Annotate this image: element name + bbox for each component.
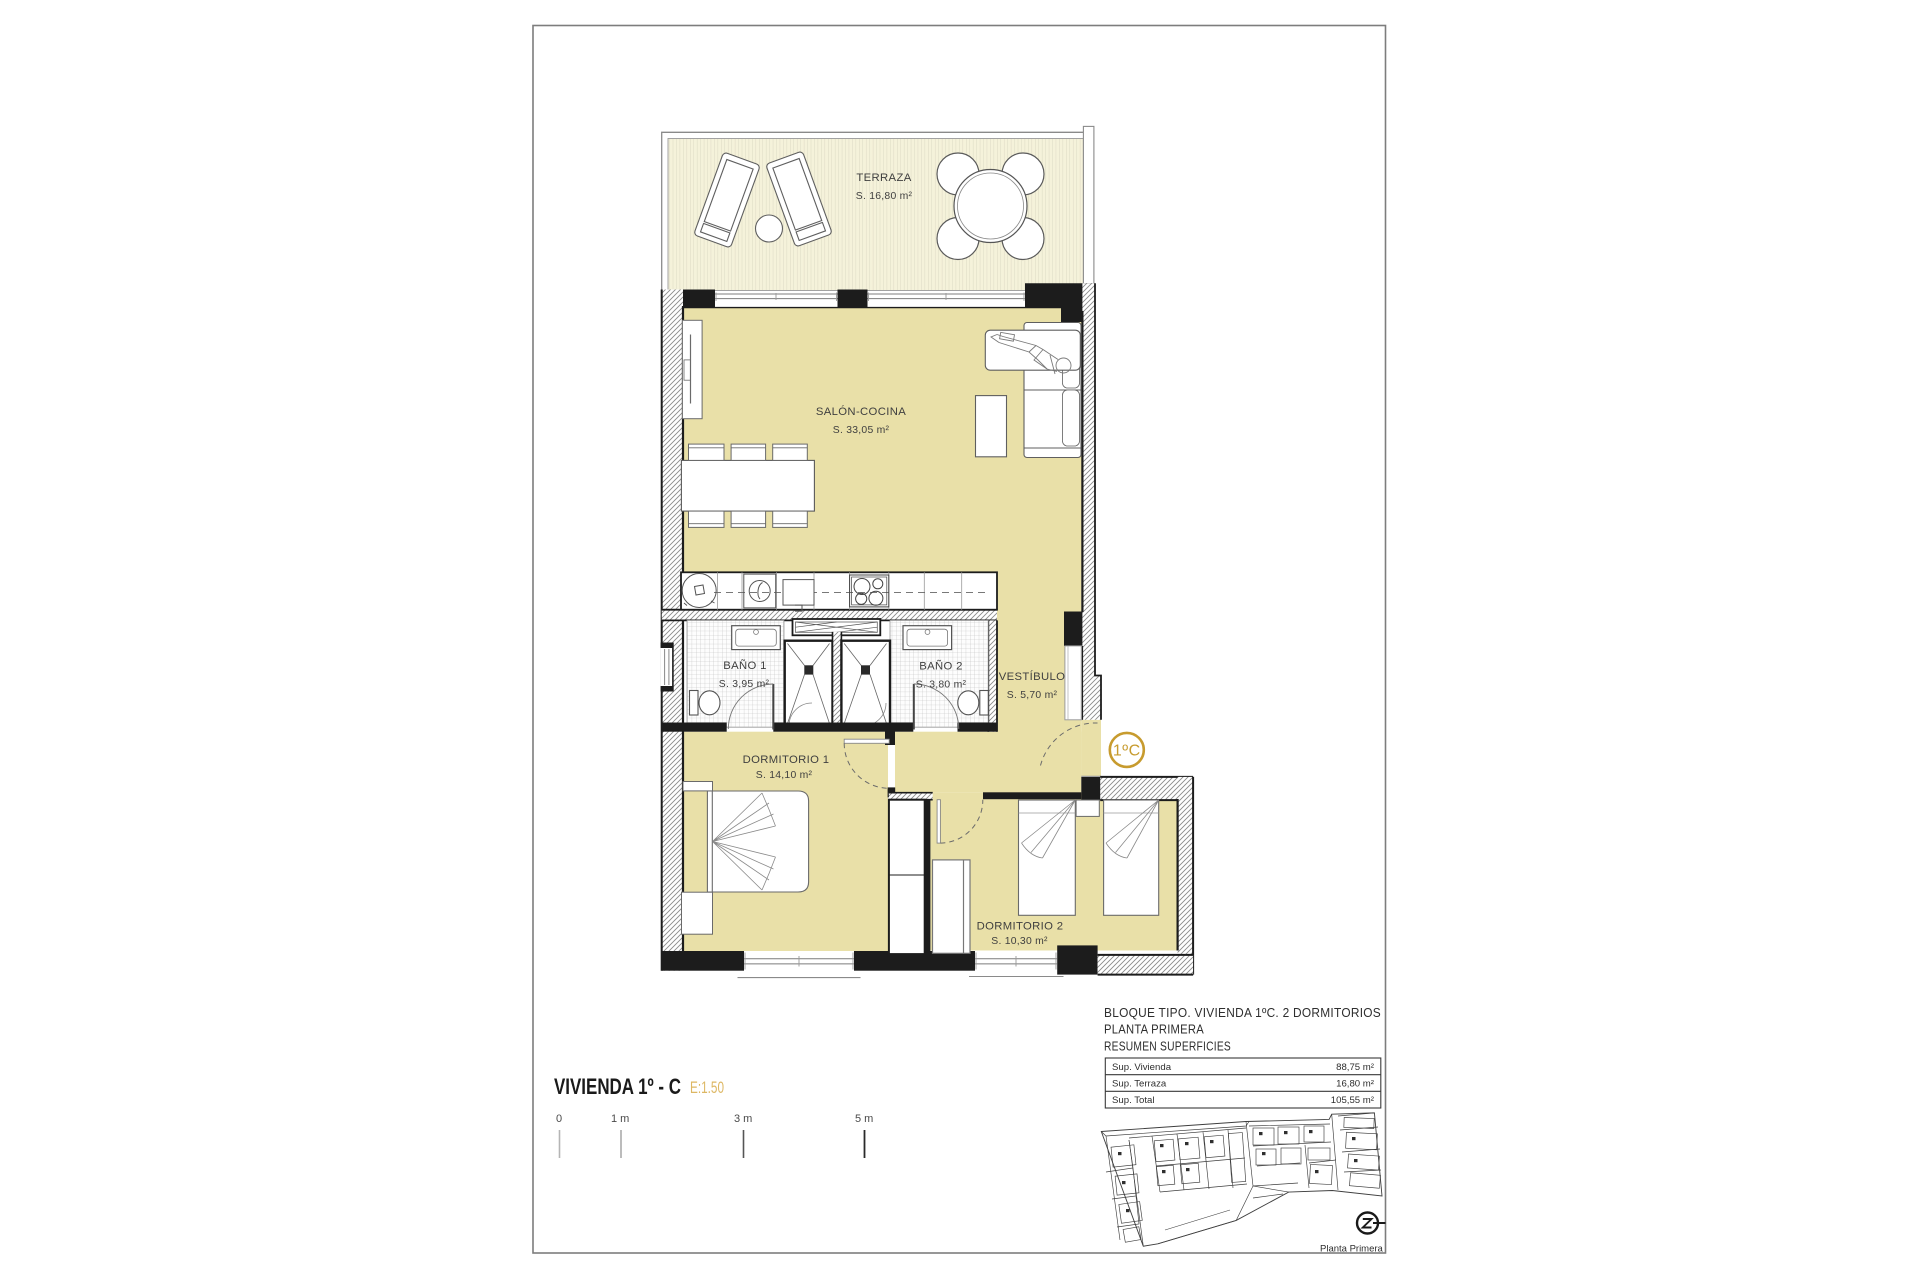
svg-text:BLOQUE TIPO. VIVIENDA 1ºC. 2 D: BLOQUE TIPO. VIVIENDA 1ºC. 2 DORMITORIOS [1104, 1005, 1381, 1020]
svg-text:105,55 m²: 105,55 m² [1331, 1095, 1375, 1106]
svg-text:1ºC: 1ºC [1113, 743, 1141, 760]
svg-text:PLANTA PRIMERA: PLANTA PRIMERA [1104, 1022, 1204, 1037]
svg-text:0: 0 [556, 1113, 562, 1125]
svg-text:Planta Primera: Planta Primera [1320, 1244, 1384, 1255]
svg-text:DORMITORIO 1: DORMITORIO 1 [743, 754, 830, 766]
svg-text:BAÑO 1: BAÑO 1 [723, 659, 767, 672]
svg-text:S. 16,80 m²: S. 16,80 m² [856, 191, 913, 202]
svg-text:E:1.50: E:1.50 [690, 1079, 724, 1097]
svg-text:3 m: 3 m [734, 1113, 752, 1125]
svg-text:5 m: 5 m [855, 1113, 873, 1125]
svg-text:88,75 m²: 88,75 m² [1336, 1062, 1375, 1073]
svg-text:1 m: 1 m [611, 1113, 629, 1125]
svg-text:16,80 m²: 16,80 m² [1336, 1079, 1375, 1090]
svg-text:Sup. Vivienda: Sup. Vivienda [1112, 1062, 1172, 1073]
svg-text:TERRAZA: TERRAZA [856, 172, 911, 184]
svg-text:RESUMEN SUPERFICIES: RESUMEN SUPERFICIES [1104, 1039, 1231, 1054]
svg-text:VESTÍBULO: VESTÍBULO [999, 670, 1066, 683]
svg-text:Sup. Terraza: Sup. Terraza [1112, 1079, 1167, 1090]
svg-text:VIVIENDA 1º - C: VIVIENDA 1º - C [554, 1074, 681, 1099]
svg-text:DORMITORIO 2: DORMITORIO 2 [977, 921, 1064, 933]
svg-text:Sup. Total: Sup. Total [1112, 1095, 1155, 1106]
svg-text:S. 5,70 m²: S. 5,70 m² [1007, 690, 1058, 701]
svg-text:S. 10,30 m²: S. 10,30 m² [991, 936, 1048, 947]
svg-text:S. 3,80 m²: S. 3,80 m² [916, 680, 967, 691]
svg-text:S. 14,10 m²: S. 14,10 m² [756, 770, 813, 781]
svg-text:SALÓN-COCINA: SALÓN-COCINA [816, 405, 906, 418]
svg-text:BAÑO 2: BAÑO 2 [919, 660, 963, 673]
svg-text:S. 3,95 m²: S. 3,95 m² [719, 679, 770, 690]
svg-text:S. 33,05 m²: S. 33,05 m² [833, 425, 890, 436]
